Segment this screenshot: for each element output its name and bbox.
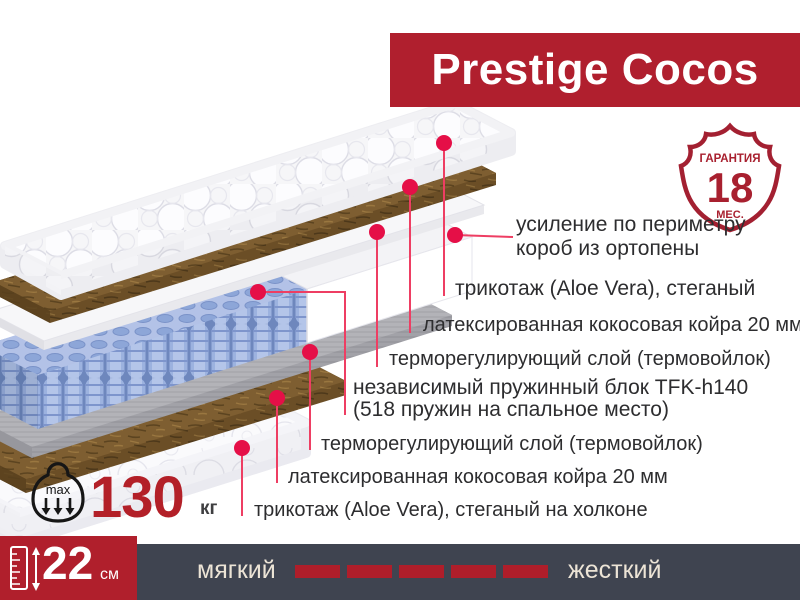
ruler-icon <box>10 546 44 592</box>
label-spring-block: независимый пружинный блок TFK-h140 (518… <box>353 377 748 421</box>
firmness-hard-label: жесткий <box>568 556 661 585</box>
firmness-soft-label: мягкий <box>197 556 276 585</box>
title-banner: Prestige Cocos <box>390 33 800 107</box>
kettlebell-icon: max <box>28 456 88 526</box>
mattress-infographic: { "title": "Prestige Cocos", "badge": { … <box>0 0 800 600</box>
height-value: 22 <box>42 536 93 590</box>
firmness-dash <box>503 565 548 578</box>
label-bottom-cover: трикотаж (Aloe Vera), стеганый на холкон… <box>254 499 648 522</box>
firmness-dash <box>347 565 392 578</box>
label-foam-box: усиление по периметру короб из ортопены <box>516 213 746 261</box>
label-top-coir: латексированная кокосовая койра 20 мм <box>423 314 800 337</box>
product-title: Prestige Cocos <box>431 45 758 95</box>
warranty-months: 18 <box>707 164 754 211</box>
height-block: 22 см <box>0 536 137 600</box>
firmness-scale <box>295 565 548 578</box>
max-weight-block: max 130 кг <box>28 456 288 536</box>
max-weight-value: 130 <box>90 464 184 531</box>
firmness-dash <box>295 565 340 578</box>
firmness-dash <box>399 565 444 578</box>
max-label: max <box>46 482 71 497</box>
label-bottom-felt: терморегулирующий слой (термовойлок) <box>321 433 703 456</box>
height-arrow-icon <box>32 547 40 591</box>
firmness-dash <box>451 565 496 578</box>
max-weight-unit: кг <box>200 498 217 520</box>
label-top-felt: терморегулирующий слой (термовойлок) <box>389 348 771 371</box>
label-bottom-coir: латексированная кокосовая койра 20 мм <box>288 466 668 489</box>
height-unit: см <box>100 566 119 584</box>
label-top-cover: трикотаж (Aloe Vera), стеганый <box>455 277 755 301</box>
